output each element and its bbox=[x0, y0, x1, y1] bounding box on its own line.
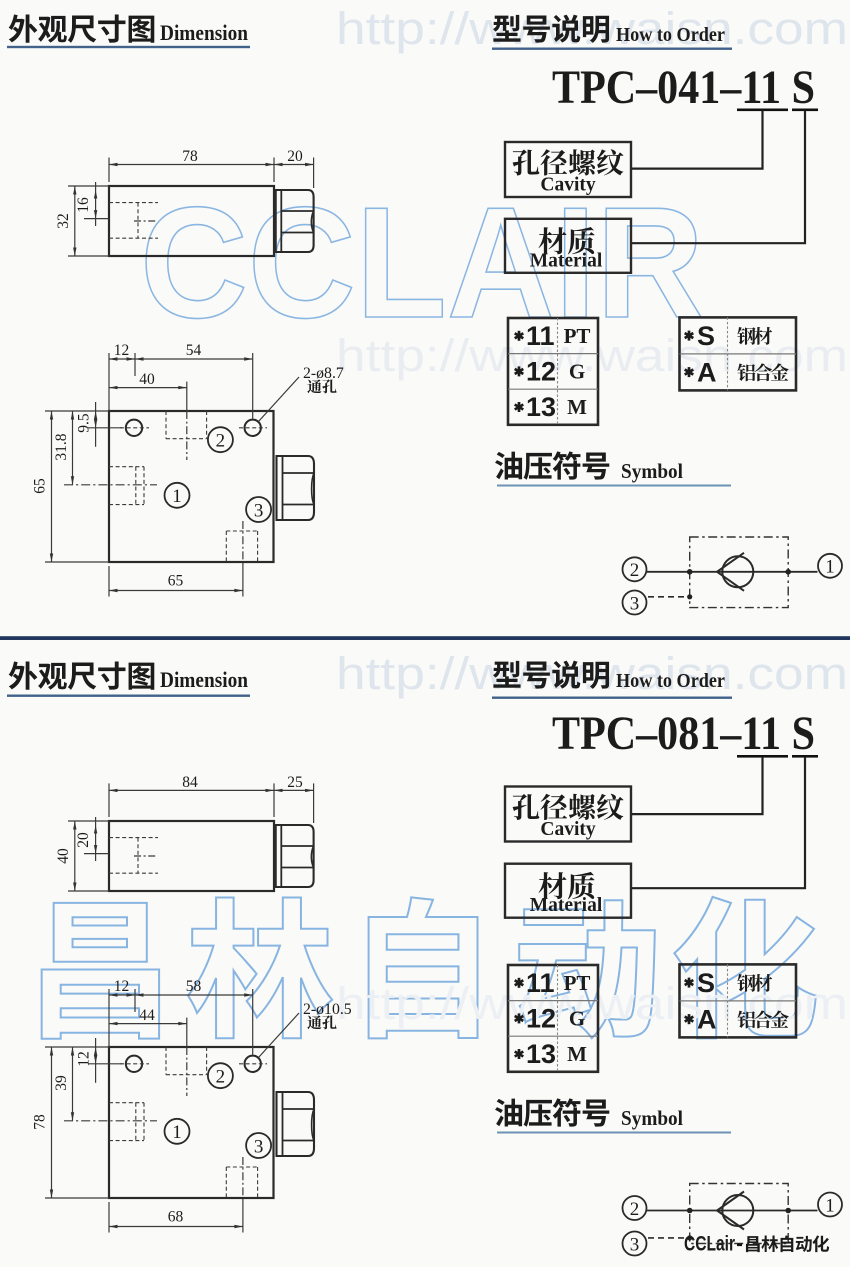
svg-text:78: 78 bbox=[32, 1114, 49, 1130]
svg-text:A: A bbox=[697, 1005, 717, 1035]
svg-text:39: 39 bbox=[53, 1075, 70, 1091]
svg-text:25: 25 bbox=[287, 774, 303, 791]
svg-text:12: 12 bbox=[526, 1003, 556, 1033]
svg-text:S: S bbox=[697, 321, 715, 351]
svg-text:3: 3 bbox=[630, 593, 640, 614]
svg-text:13: 13 bbox=[526, 392, 556, 422]
svg-text:1: 1 bbox=[172, 486, 182, 507]
svg-text:Dimension: Dimension bbox=[160, 667, 248, 692]
svg-text:1: 1 bbox=[172, 1122, 182, 1143]
svg-text:40: 40 bbox=[139, 371, 155, 388]
svg-text:G: G bbox=[569, 1006, 585, 1030]
svg-text:54: 54 bbox=[186, 342, 202, 359]
svg-text:1: 1 bbox=[825, 557, 835, 578]
svg-text:40: 40 bbox=[55, 848, 72, 864]
svg-text:How to Order: How to Order bbox=[616, 24, 725, 46]
svg-text:CCLAIR: CCLAIR bbox=[140, 175, 704, 351]
svg-text:65: 65 bbox=[32, 478, 49, 494]
svg-text:2-ø10.5: 2-ø10.5 bbox=[303, 1001, 352, 1018]
svg-text:A: A bbox=[697, 358, 717, 388]
svg-text:12: 12 bbox=[114, 342, 130, 359]
svg-text:Cavity: Cavity bbox=[540, 175, 595, 196]
svg-text:11: 11 bbox=[526, 968, 555, 998]
svg-text:M: M bbox=[567, 395, 587, 419]
svg-text:TPC–041–11 S: TPC–041–11 S bbox=[552, 61, 815, 114]
svg-text:PT: PT bbox=[564, 971, 591, 995]
svg-text:13: 13 bbox=[526, 1039, 556, 1069]
svg-text:2: 2 bbox=[630, 1199, 640, 1220]
svg-text:Symbol: Symbol bbox=[621, 1106, 683, 1130]
svg-text:44: 44 bbox=[139, 1007, 155, 1024]
svg-text:58: 58 bbox=[186, 978, 202, 995]
svg-text:Material: Material bbox=[530, 250, 603, 271]
svg-text:2: 2 bbox=[216, 1067, 226, 1088]
svg-text:S: S bbox=[697, 968, 715, 998]
svg-text:TPC–081–11 S: TPC–081–11 S bbox=[552, 707, 815, 760]
svg-text:CCLair: CCLair bbox=[684, 1232, 735, 1256]
svg-text:65: 65 bbox=[168, 573, 184, 590]
svg-text:2-ø8.7: 2-ø8.7 bbox=[303, 365, 344, 382]
svg-text:32: 32 bbox=[55, 213, 72, 229]
svg-text:9.5: 9.5 bbox=[76, 413, 93, 433]
svg-text:Dimension: Dimension bbox=[160, 20, 248, 45]
svg-text:M: M bbox=[567, 1042, 587, 1066]
svg-text:3: 3 bbox=[630, 1234, 640, 1255]
svg-text:3: 3 bbox=[254, 1136, 264, 1157]
svg-text:31.8: 31.8 bbox=[53, 433, 70, 460]
svg-text:1: 1 bbox=[825, 1195, 835, 1216]
svg-text:68: 68 bbox=[168, 1209, 184, 1226]
svg-text:G: G bbox=[569, 359, 585, 383]
svg-text:12: 12 bbox=[76, 1051, 93, 1067]
svg-text:http://www.waisn.com: http://www.waisn.com bbox=[336, 978, 848, 1029]
svg-text:20: 20 bbox=[75, 832, 92, 848]
svg-text:2: 2 bbox=[630, 560, 640, 581]
svg-text:12: 12 bbox=[526, 356, 556, 386]
svg-text:3: 3 bbox=[254, 500, 264, 521]
svg-text:Material: Material bbox=[530, 895, 603, 916]
svg-text:Cavity: Cavity bbox=[540, 819, 595, 840]
svg-text:PT: PT bbox=[564, 324, 591, 348]
svg-text:16: 16 bbox=[75, 197, 92, 213]
svg-text:84: 84 bbox=[182, 774, 198, 791]
svg-text:20: 20 bbox=[287, 148, 303, 165]
svg-text:How to Order: How to Order bbox=[616, 670, 725, 692]
svg-text:2: 2 bbox=[216, 431, 226, 452]
svg-text:Symbol: Symbol bbox=[621, 459, 683, 483]
svg-text:11: 11 bbox=[526, 321, 555, 351]
svg-text:78: 78 bbox=[182, 148, 198, 165]
svg-text:12: 12 bbox=[114, 978, 130, 995]
